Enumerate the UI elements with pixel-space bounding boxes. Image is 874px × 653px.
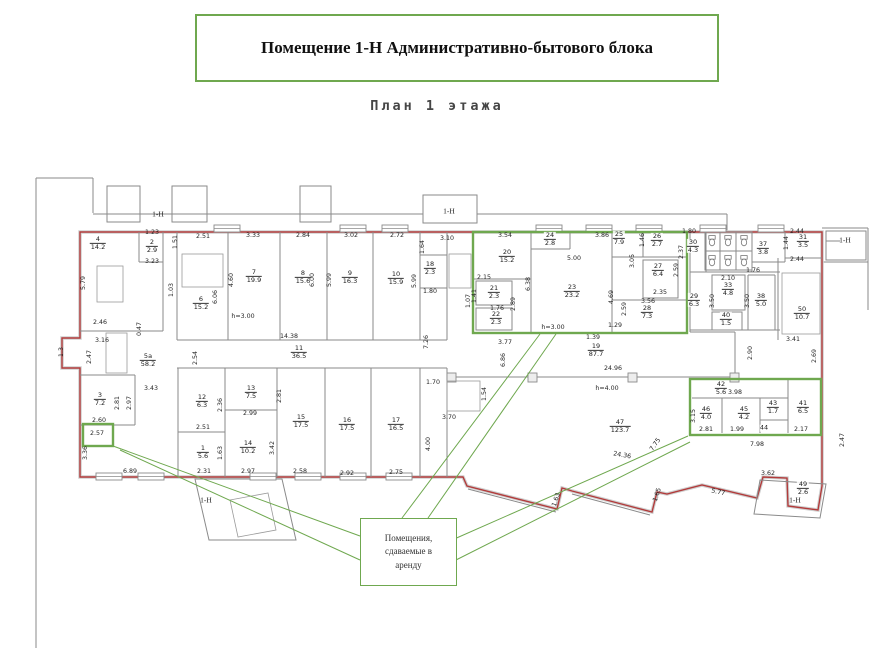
rented-area-right (690, 379, 821, 435)
wc-block (705, 232, 752, 270)
rented-area-highlights (83, 232, 821, 446)
entrance-porch (423, 195, 477, 223)
rented-area-center (473, 232, 687, 333)
stairs-hatch-right (826, 231, 866, 260)
windows-row (96, 225, 784, 480)
floor-plan-page: Помещение 1-Н Административно-бытового б… (0, 0, 874, 653)
stairs-hatch-bottom (195, 479, 296, 540)
rented-area-small (83, 424, 113, 446)
legend-callout: Помещения, сдаваемые в аренду (360, 518, 457, 586)
outer-wall (62, 232, 822, 512)
premises-outline (62, 232, 822, 512)
